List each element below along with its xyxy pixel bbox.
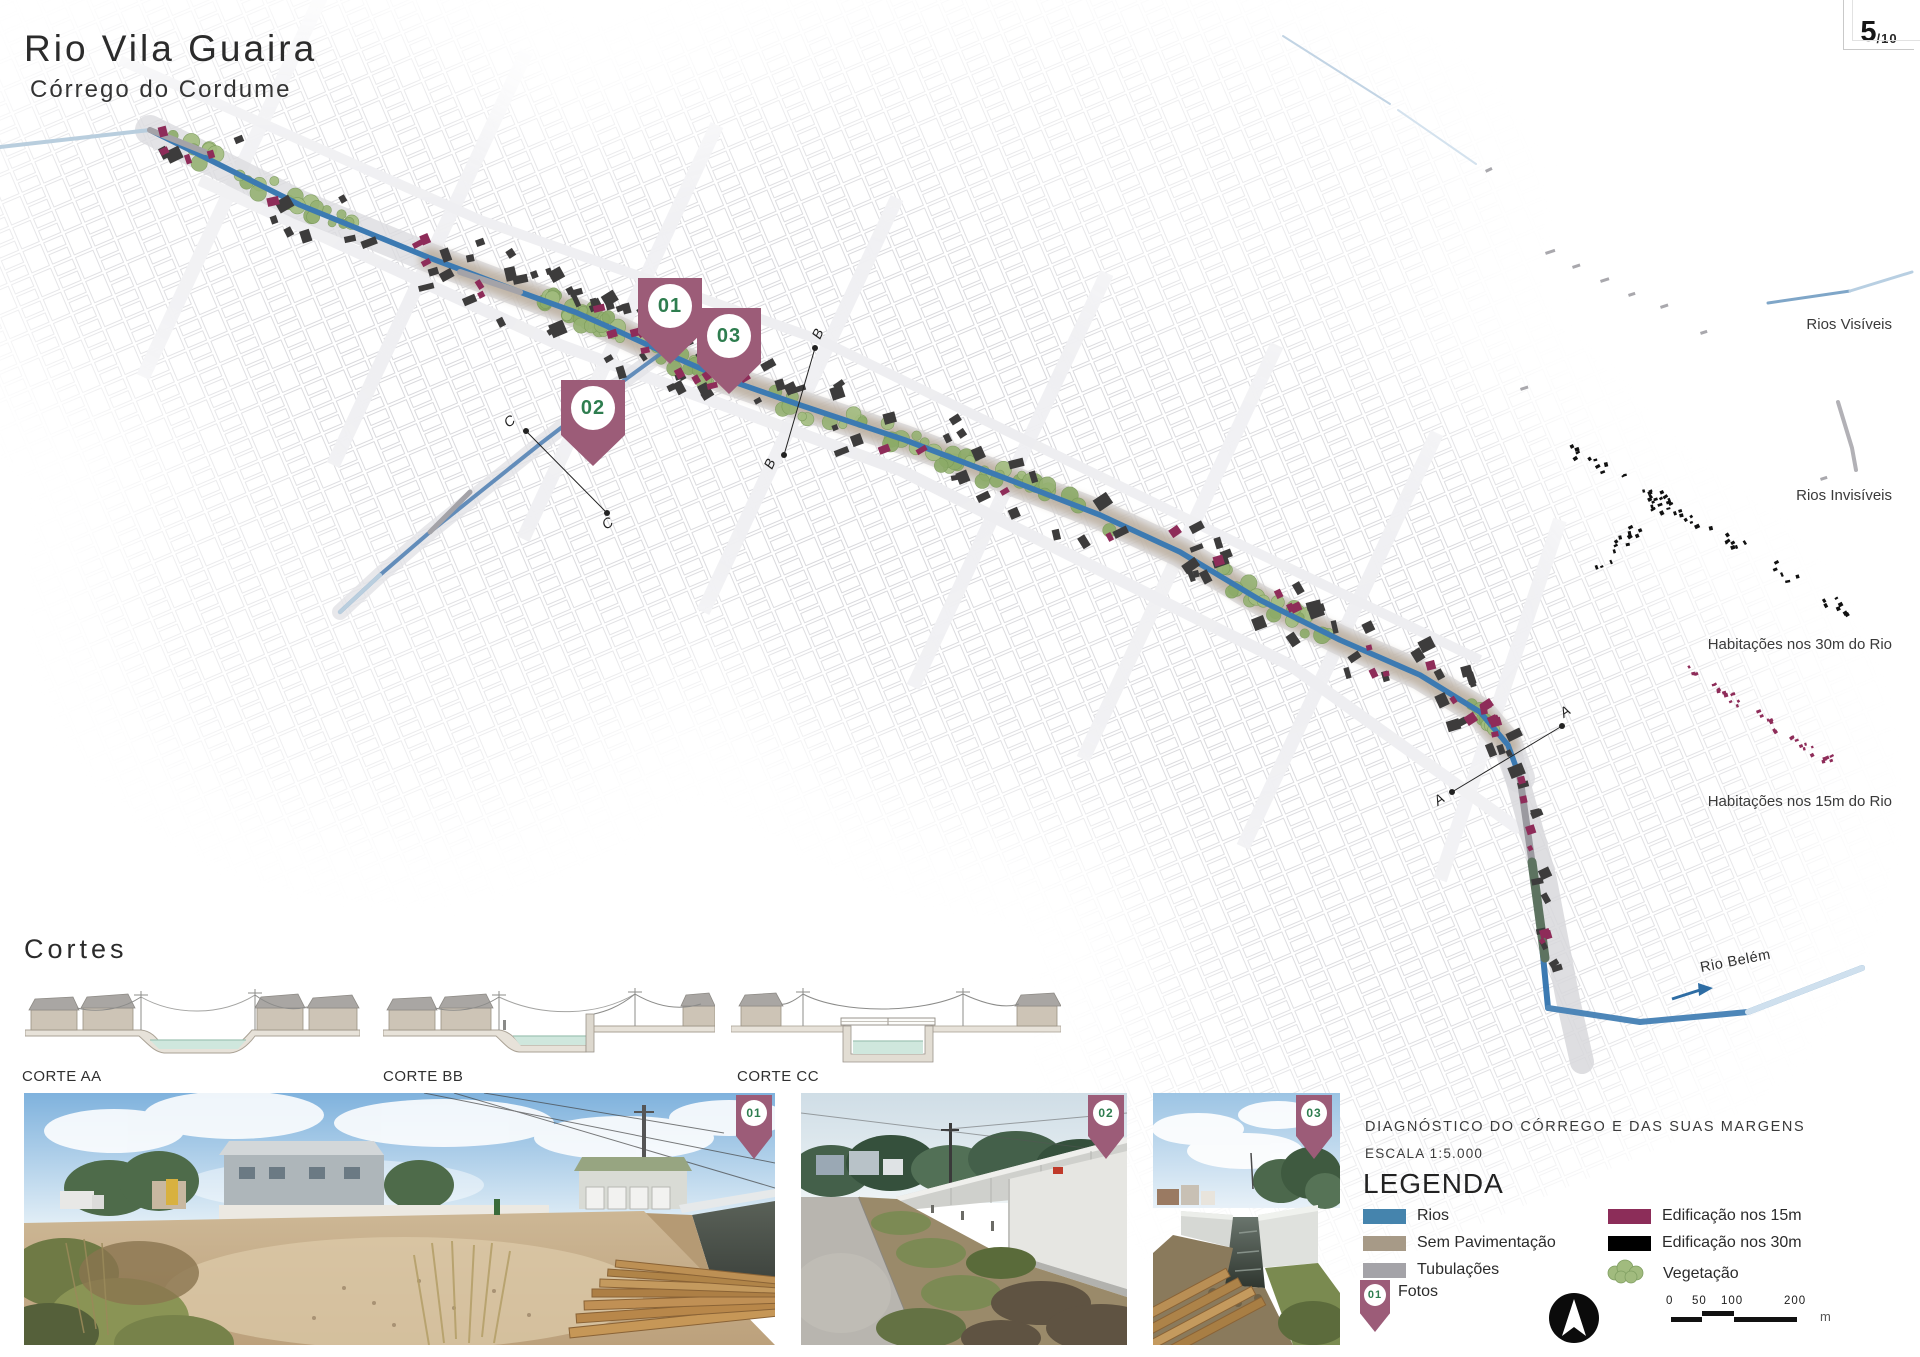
legend-item-fotos-label: Fotos [1398, 1283, 1438, 1301]
scalebar-segment [1734, 1317, 1797, 1322]
scalebar-tick: 50 [1692, 1295, 1707, 1307]
legend-scale: ESCALA 1:5.000 [1365, 1146, 1483, 1161]
corte-aa-drawing [25, 986, 360, 1066]
pin-circle: 01 [741, 1100, 767, 1126]
legend-item-sem-pavimentacao: Sem Pavimentação [1363, 1234, 1556, 1252]
corte-cc-label: CORTE CC [737, 1068, 819, 1085]
pin-circle: 03 [1301, 1100, 1327, 1126]
vegetacao-icon [1606, 1258, 1652, 1289]
pin-number: 01 [1368, 1289, 1382, 1301]
scalebar-tick: 200 [1784, 1295, 1806, 1307]
label-habitacoes-30m: Habitações nos 30m do Rio [1572, 636, 1892, 653]
corte-cc-drawing [731, 986, 1061, 1066]
cortes-heading: Cortes [24, 934, 128, 965]
sem-pavimentacao-swatch [1363, 1236, 1406, 1251]
edificacao-30m-swatch [1608, 1236, 1651, 1251]
pin-circle: 02 [571, 386, 615, 430]
legend-heading: LEGENDA [1363, 1168, 1504, 1200]
corte-bb-label: CORTE BB [383, 1068, 463, 1085]
page-title: Rio Vila Guaira [24, 28, 317, 70]
legend-item-label: Rios [1417, 1207, 1449, 1225]
edificacao-15m-swatch [1608, 1209, 1651, 1224]
north-arrow-icon [1548, 1292, 1600, 1344]
rios-swatch [1363, 1209, 1406, 1224]
page-subtitle: Córrego do Cordume [30, 76, 291, 104]
pin-circle: 01 [1364, 1284, 1386, 1306]
pin-number: 01 [746, 1106, 761, 1120]
legend-item-edificacao-30m: Edificação nos 30m [1608, 1234, 1802, 1252]
poster-page: A A B B C C Rio Vila Guaira Córrego do C… [0, 0, 1920, 1357]
scalebar-tick: 100 [1721, 1295, 1743, 1307]
pin-circle: 01 [648, 284, 692, 328]
pin-circle: 03 [707, 314, 751, 358]
scalebar-tick: 0 [1666, 1295, 1673, 1307]
legend-item-label: Sem Pavimentação [1417, 1234, 1556, 1252]
corte-bb-drawing [383, 986, 715, 1066]
legend-item-rios: Rios [1363, 1207, 1449, 1225]
label-rios-invisiveis: Rios Invisíveis [1572, 487, 1892, 504]
scalebar-unit: m [1820, 1309, 1832, 1324]
pin-number: 03 [717, 325, 741, 348]
photo-01 [24, 1093, 775, 1345]
legend-item-label: Edificação nos 30m [1662, 1234, 1802, 1252]
page-number-inner-frame [1852, 0, 1920, 41]
corte-aa-label: CORTE AA [22, 1068, 102, 1085]
label-rios-visiveis: Rios Visíveis [1572, 316, 1892, 333]
legend-item-label: Tubulações [1417, 1261, 1499, 1279]
pin-number: 02 [1098, 1106, 1113, 1120]
pin-number: 01 [658, 295, 682, 318]
photo-02 [801, 1093, 1127, 1345]
pin-number: 03 [1306, 1106, 1321, 1120]
pin-number: 02 [581, 397, 605, 420]
legend-title: DIAGNÓSTICO DO CÓRREGO E DAS SUAS MARGEN… [1365, 1119, 1805, 1135]
label-habitacoes-15m: Habitações nos 15m do Rio [1572, 793, 1892, 810]
pin-circle: 02 [1093, 1100, 1119, 1126]
legend-item-vegetacao: Vegetação [1606, 1258, 1739, 1289]
legend-item-label: Vegetação [1663, 1265, 1739, 1283]
legend-item-tubulacoes: Tubulações [1363, 1261, 1499, 1279]
scalebar-segment [1702, 1311, 1734, 1316]
legend-item-edificacao-15m: Edificação nos 15m [1608, 1207, 1802, 1225]
scalebar-segment [1671, 1317, 1702, 1322]
legend-item-label: Edificação nos 15m [1662, 1207, 1802, 1225]
page-number-box: 5/10 [1843, 0, 1914, 50]
tubulacoes-swatch [1363, 1263, 1406, 1278]
